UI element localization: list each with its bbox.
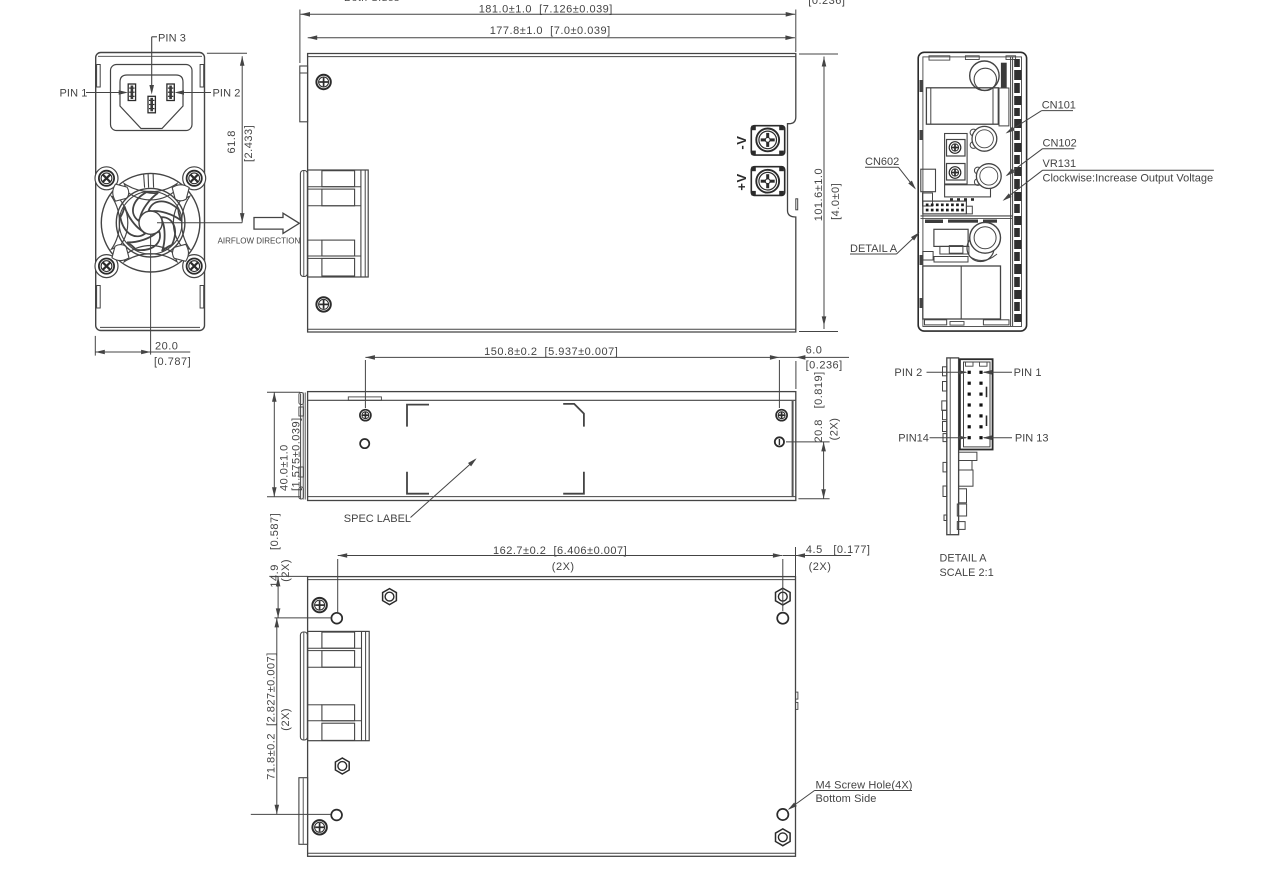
svg-text:101.6±1.0: 101.6±1.0: [813, 168, 825, 221]
svg-text:(2X): (2X): [828, 418, 840, 441]
svg-text:PIN14: PIN14: [898, 433, 929, 445]
svg-text:Both Sides: Both Sides: [344, 0, 400, 4]
svg-text:PIN 3: PIN 3: [158, 33, 186, 45]
svg-text:Clockwise:Increase Output Volt: Clockwise:Increase Output Voltage: [1043, 173, 1214, 185]
svg-text:177.8±1.0 [7.0±0.039]: 177.8±1.0 [7.0±0.039]: [490, 25, 611, 37]
svg-text:(2X): (2X): [552, 561, 575, 573]
svg-text:181.0±1.0 [7.126±0.039]: 181.0±1.0 [7.126±0.039]: [479, 3, 613, 15]
svg-text:[2.433]: [2.433]: [243, 125, 255, 162]
svg-text:[0.236]: [0.236]: [808, 0, 845, 7]
svg-text:20.8 [0.819]: 20.8 [0.819]: [813, 371, 825, 442]
svg-text:CN102: CN102: [1043, 138, 1077, 150]
svg-text:6.0: 6.0: [806, 344, 823, 356]
svg-text:PIN 2: PIN 2: [894, 367, 922, 379]
svg-text:Bottom Side: Bottom Side: [816, 793, 877, 805]
svg-text:CN602: CN602: [865, 156, 899, 168]
svg-text:61.8: 61.8: [226, 130, 238, 153]
svg-text:VR131: VR131: [1043, 158, 1077, 170]
svg-text:PIN 1: PIN 1: [1014, 367, 1042, 379]
svg-text:40.0±1.0: 40.0±1.0: [279, 444, 291, 491]
svg-text:[0.236]: [0.236]: [806, 360, 843, 372]
svg-text:CN101: CN101: [1042, 99, 1076, 111]
svg-text:PIN 1: PIN 1: [60, 88, 88, 100]
svg-text:PIN 2: PIN 2: [213, 88, 241, 100]
svg-text:DETAIL A: DETAIL A: [850, 243, 898, 255]
svg-text:(2X): (2X): [809, 561, 832, 573]
svg-text:71.8±0.2 [2.827±0.007]: 71.8±0.2 [2.827±0.007]: [266, 652, 278, 780]
svg-text:+V: +V: [734, 173, 749, 190]
svg-text:20.0: 20.0: [155, 340, 178, 352]
svg-text:[1.575±0.039]: [1.575±0.039]: [290, 417, 302, 491]
svg-text:[0.787]: [0.787]: [154, 356, 191, 368]
svg-text:-V: -V: [734, 136, 749, 150]
svg-text:SPEC LABEL: SPEC LABEL: [344, 513, 411, 525]
svg-text:AIRFLOW DIRECTION: AIRFLOW DIRECTION: [218, 237, 301, 246]
svg-text:DETAIL A: DETAIL A: [940, 553, 988, 565]
svg-text:(2X): (2X): [280, 708, 292, 731]
svg-text:150.8±0.2 [5.937±0.007]: 150.8±0.2 [5.937±0.007]: [484, 346, 618, 358]
svg-text:(2X): (2X): [280, 559, 292, 582]
svg-text:M4 Screw Hole(4X): M4 Screw Hole(4X): [816, 779, 913, 791]
svg-text:PIN 13: PIN 13: [1015, 433, 1049, 445]
svg-text:[4.0±0]: [4.0±0]: [830, 183, 842, 220]
svg-text:SCALE 2:1: SCALE 2:1: [940, 567, 994, 579]
svg-text:4.5 [0.177]: 4.5 [0.177]: [806, 544, 871, 556]
